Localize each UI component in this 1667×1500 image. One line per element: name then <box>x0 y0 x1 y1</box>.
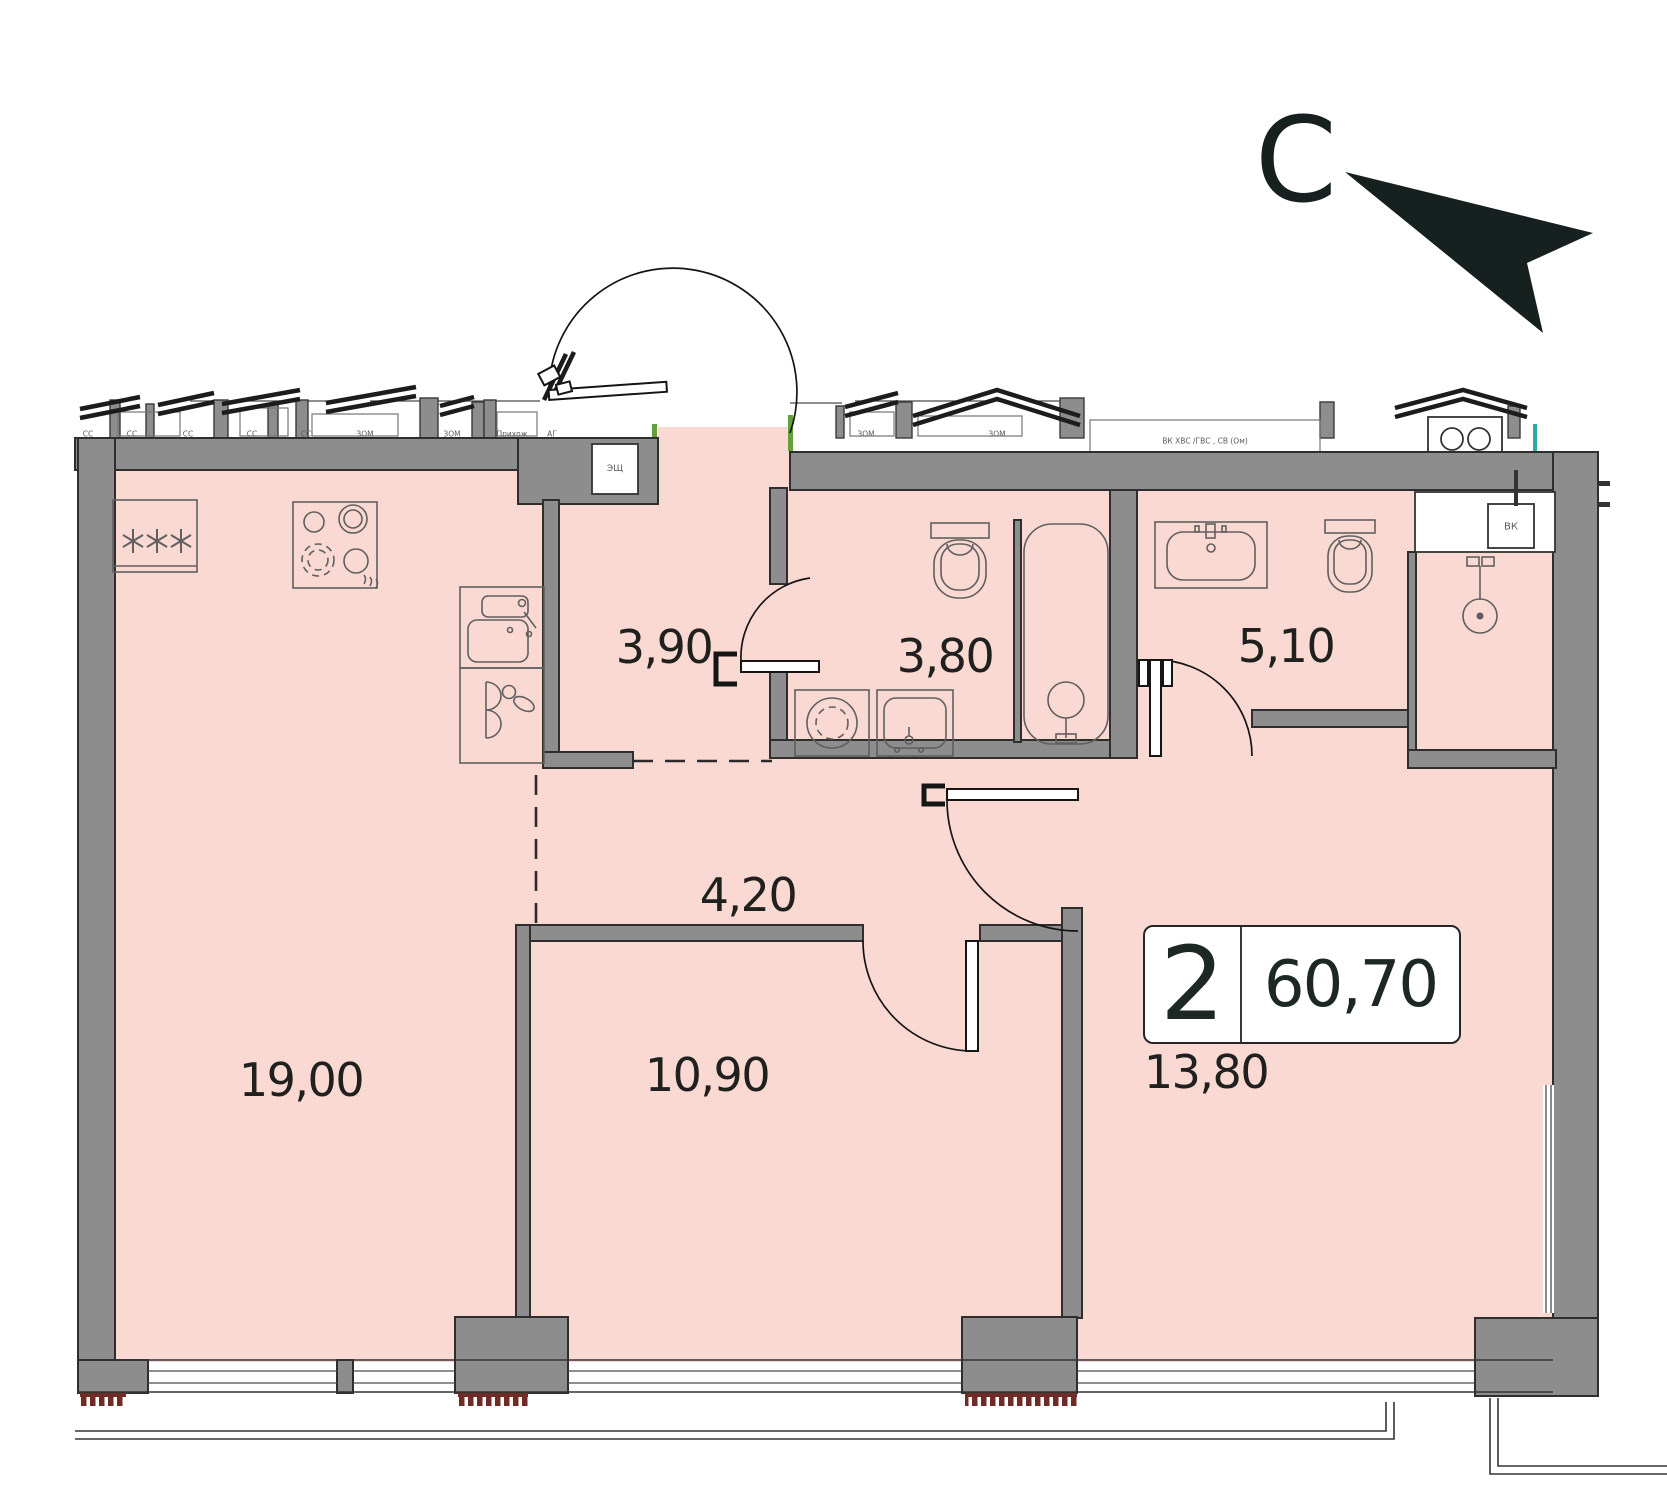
area-label-wc: 5,10 <box>1238 619 1334 673</box>
apartment-floor <box>114 427 1554 1362</box>
total-area: 60,70 <box>1242 927 1459 1042</box>
apartment-info-badge: 2 60,70 <box>1143 925 1461 1044</box>
area-label-kitchen-living: 19,00 <box>239 1053 363 1107</box>
neighbor-label: СС <box>301 430 311 439</box>
electrical-shaft-label: ЭЩ <box>607 464 623 474</box>
neighbor-label: ЗОМ <box>988 430 1005 439</box>
neighbor-label: ЗОМ <box>857 430 874 439</box>
comb-hatches <box>80 1393 1077 1406</box>
neighbor-label: СС <box>127 430 137 439</box>
area-label-bathroom: 3,80 <box>897 629 993 683</box>
neighbor-label: СС <box>247 430 257 439</box>
neighbor-label: СС <box>83 430 93 439</box>
floorplan-page: 19,00 3,90 3,80 5,10 4,20 10,90 13,80 С … <box>0 0 1667 1500</box>
area-label-bedroom: 10,90 <box>645 1048 769 1102</box>
neighbor-label: ЗОМ <box>443 430 460 439</box>
entrance-door <box>538 268 797 433</box>
area-label-hallway: 3,90 <box>616 620 712 674</box>
north-letter: С <box>1255 91 1337 229</box>
neighbor-label: АГ <box>547 430 557 439</box>
utilities-label: ВК ХВС /ГВС , СВ (Ом) <box>1162 437 1248 446</box>
neighbor-label: СС <box>183 430 193 439</box>
vk-shaft-label: ВК <box>1504 522 1518 533</box>
area-label-corridor: 4,20 <box>700 868 796 922</box>
floorplan-drawing <box>0 0 1667 1500</box>
rooms-count: 2 <box>1145 927 1242 1042</box>
north-arrow-icon <box>1345 172 1593 333</box>
neighbor-label: Прихож <box>496 430 527 439</box>
neighbor-label: ЗОМ <box>356 430 373 439</box>
area-label-living-room: 13,80 <box>1144 1045 1268 1099</box>
